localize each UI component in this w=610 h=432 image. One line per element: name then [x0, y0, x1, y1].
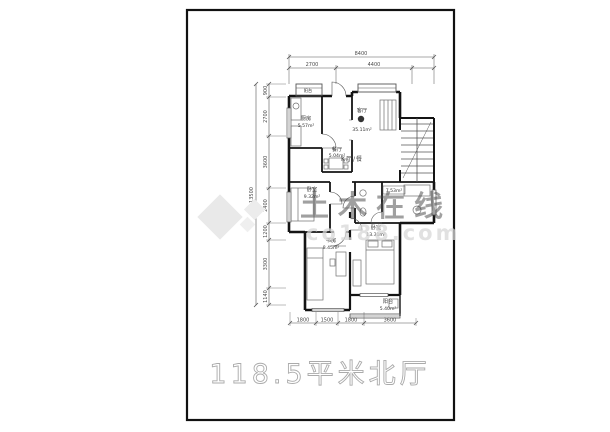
- label-balcony-bottom-name: 阳台: [383, 297, 393, 305]
- floorplan-drawing: 8400 2700 4400 13500 900 2700 3600 2400 …: [0, 0, 610, 432]
- dim-bottom-3: 1800: [345, 318, 358, 324]
- label-study-area: 8.45m²: [323, 245, 340, 251]
- dim-top-total: 8400: [355, 51, 368, 57]
- dim-left-3: 3600: [263, 156, 269, 169]
- watermark-brand-text: 土木在线: [300, 189, 452, 223]
- watermark-site-text: co188.com: [306, 221, 460, 245]
- label-hall: K厅/餐: [341, 155, 363, 163]
- label-kitchen-area: 5.57m²: [298, 123, 315, 129]
- dim-top-a: 2700: [306, 62, 319, 68]
- dim-bottom-1: 1800: [297, 318, 310, 324]
- dim-left-2: 2700: [263, 110, 269, 123]
- label-balcony-top: 阳台: [304, 87, 312, 94]
- dim-bottom-2: 1500: [321, 318, 334, 324]
- label-balcony-bottom-area: 5.40m²: [380, 306, 397, 312]
- label-dining-name: 餐厅: [332, 145, 342, 153]
- plan-title: 118.5平米北厅: [209, 359, 430, 390]
- dim-bottom-4: 3600: [384, 318, 397, 324]
- dim-left-6: 3300: [263, 258, 269, 271]
- dim-left-5: 1200: [263, 225, 269, 238]
- cad-floorplan-page: 8400 2700 4400 13500 900 2700 3600 2400 …: [0, 0, 610, 432]
- plan-title-group: 118.5平米北厅: [209, 359, 430, 390]
- dim-left-7: 1140: [263, 290, 269, 303]
- dim-top-b: 4400: [368, 62, 381, 68]
- label-living-area: 35.11m²: [352, 127, 372, 133]
- dim-left-1: 900: [263, 86, 269, 96]
- label-living-name: 客厅: [357, 106, 367, 114]
- label-kitchen-name: 厨房: [301, 114, 311, 122]
